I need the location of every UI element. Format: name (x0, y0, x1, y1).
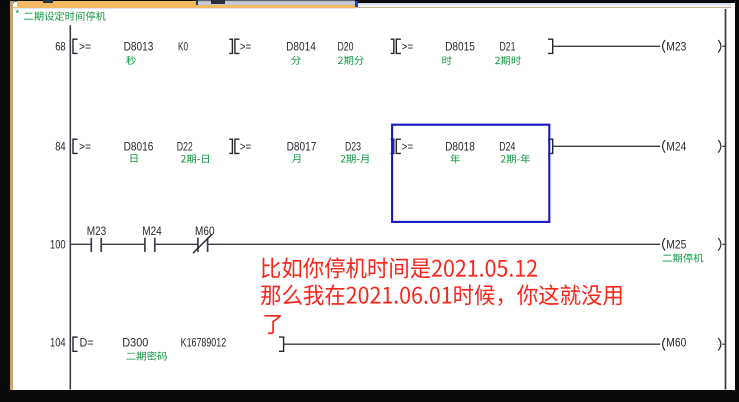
svg-text:100: 100 (50, 239, 66, 252)
svg-text:>=: >= (240, 41, 252, 54)
svg-text:M24: M24 (666, 141, 686, 154)
svg-text:M23: M23 (87, 225, 107, 238)
svg-text:>=: >= (79, 141, 91, 154)
svg-text:D22: D22 (177, 141, 193, 154)
svg-text:D8018: D8018 (445, 141, 475, 154)
svg-text:D8014: D8014 (286, 41, 316, 54)
svg-text:D24: D24 (499, 141, 515, 154)
svg-text:D23: D23 (345, 141, 361, 154)
svg-text:D8015: D8015 (445, 41, 475, 54)
svg-text:D8017: D8017 (287, 141, 317, 154)
svg-text:M25: M25 (666, 239, 686, 252)
svg-text:D300: D300 (122, 337, 148, 350)
svg-text:K0: K0 (178, 41, 188, 54)
svg-text:M60: M60 (666, 337, 686, 350)
svg-text:M60: M60 (195, 225, 215, 238)
svg-text:D8013: D8013 (124, 41, 154, 54)
svg-text:>=: >= (402, 41, 414, 54)
svg-text:>=: >= (79, 41, 91, 54)
svg-text:68: 68 (55, 41, 65, 54)
svg-text:*: * (15, 7, 19, 19)
svg-text:M24: M24 (142, 225, 162, 238)
svg-text:D8016: D8016 (124, 141, 154, 154)
svg-text:D20: D20 (338, 41, 354, 54)
svg-text:84: 84 (55, 141, 66, 154)
svg-text:M23: M23 (666, 41, 686, 54)
svg-text:D=: D= (80, 337, 94, 350)
svg-text:104: 104 (50, 337, 66, 350)
svg-text:D21: D21 (500, 41, 516, 54)
svg-text:K16789012: K16789012 (181, 337, 227, 350)
svg-text:>=: >= (402, 141, 414, 154)
svg-text:>=: >= (240, 141, 252, 154)
